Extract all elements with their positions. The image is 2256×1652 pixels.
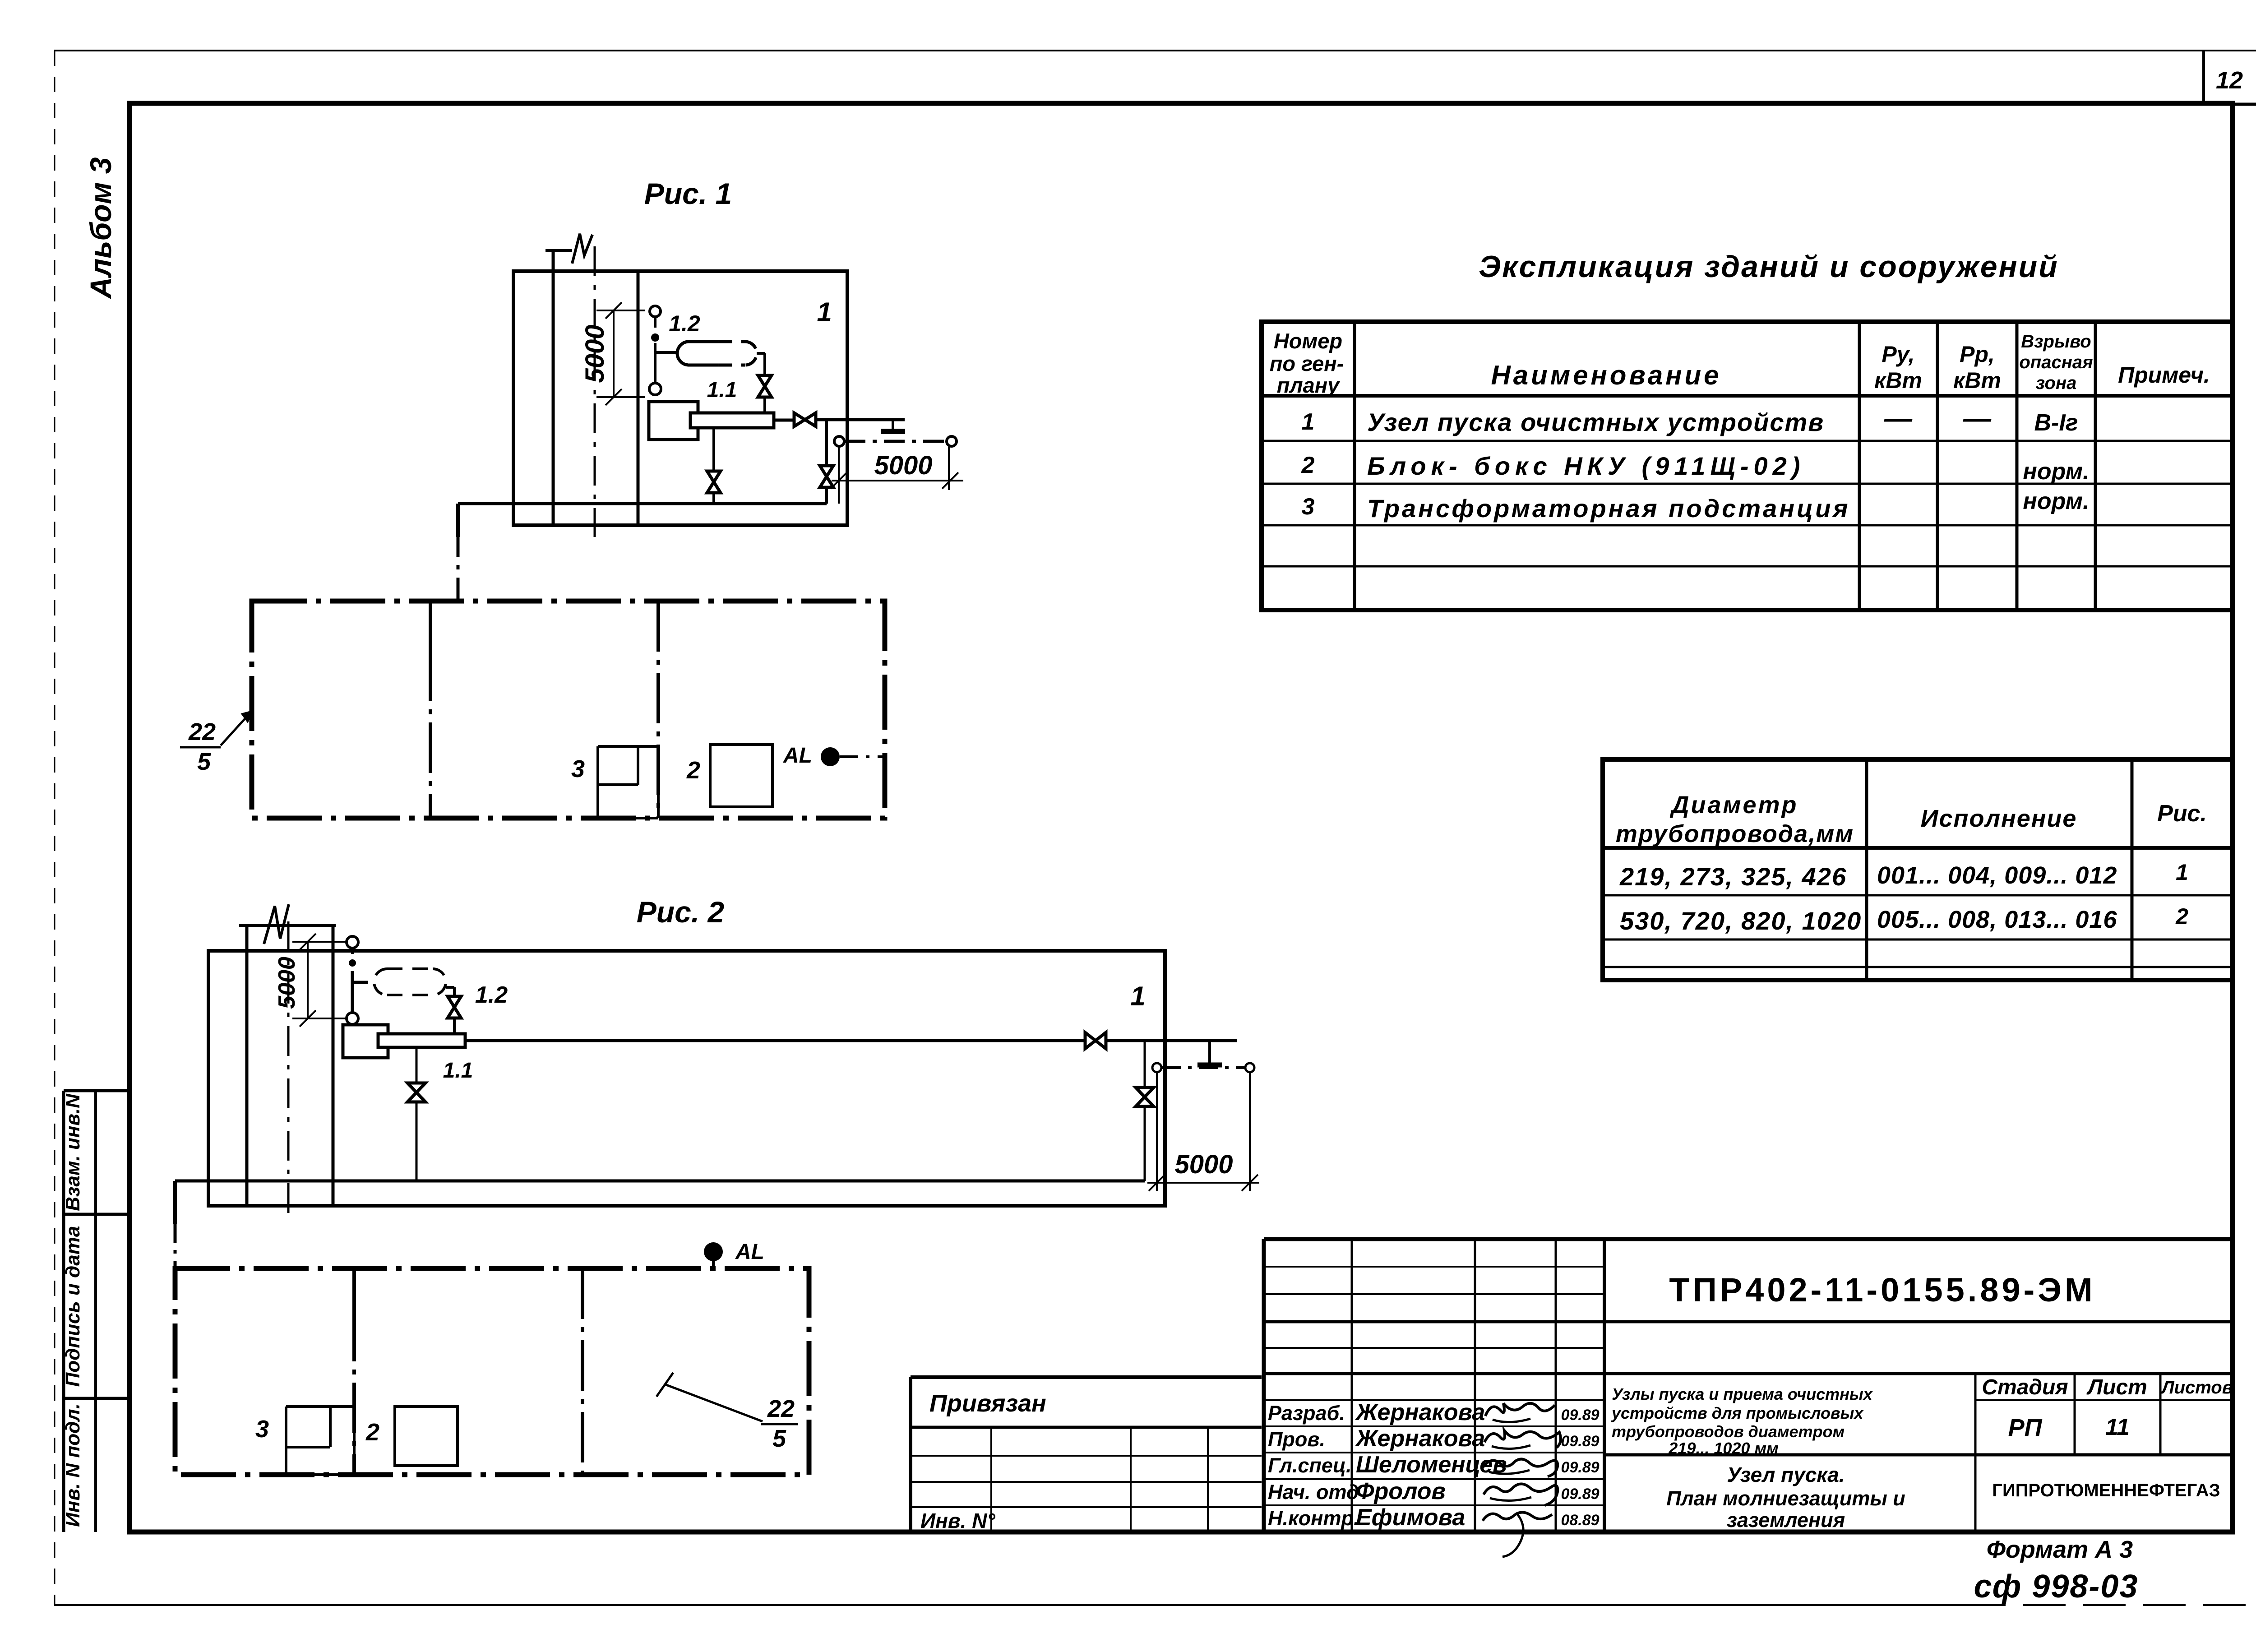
svg-text:Альбом 3: Альбом 3 [84,157,117,300]
svg-text:11: 11 [2105,1414,2130,1440]
svg-text:12: 12 [2216,67,2243,94]
svg-text:Лист: Лист [2086,1375,2147,1399]
svg-text:Узлы пуска и приема очистных: Узлы пуска и приема очистных [1612,1385,1873,1403]
svg-text:Гл.спец.: Гл.спец. [1268,1454,1352,1477]
svg-text:зона: зона [2036,373,2077,393]
svg-text:—: — [1884,403,1913,434]
svg-text:2: 2 [686,757,700,784]
svg-text:3: 3 [1302,494,1315,520]
svg-text:Нач. отд: Нач. отд [1268,1481,1359,1504]
svg-text:Рр,: Рр, [1960,342,1995,367]
svg-text:Ру,: Ру, [1882,342,1914,367]
svg-text:Наименование: Наименование [1491,360,1721,390]
svg-text:09.89: 09.89 [1561,1433,1599,1450]
svg-text:219... 1020 мм: 219... 1020 мм [1668,1439,1778,1458]
svg-text:530, 720, 820, 1020: 530, 720, 820, 1020 [1620,907,1862,935]
svg-text:кВт: кВт [1874,368,1922,393]
svg-text:5: 5 [197,748,211,775]
svg-text:09.89: 09.89 [1561,1485,1599,1503]
svg-text:1: 1 [1130,981,1145,1011]
svg-text:Номер: Номер [1274,329,1342,353]
svg-text:трубопровода,мм: трубопровода,мм [1616,820,1854,847]
svg-text:5000: 5000 [1174,1150,1233,1179]
svg-text:Фролов: Фролов [1356,1478,1446,1504]
svg-text:Примеч.: Примеч. [2118,362,2210,388]
svg-text:Экспликация зданий и сооружени: Экспликация зданий и сооружений [1479,250,2059,284]
svg-text:Трансформаторная подстанция: Трансформаторная подстанция [1367,494,1850,523]
svg-text:плану: плану [1277,373,1341,397]
svg-text:3: 3 [255,1416,269,1443]
svg-text:Узел пуска.: Узел пуска. [1727,1463,1845,1486]
svg-text:норм.: норм. [2023,488,2089,514]
svg-text:норм.: норм. [2023,458,2089,485]
svg-text:Жернакова: Жернакова [1355,1399,1485,1425]
svg-text:AL: AL [735,1240,764,1264]
svg-text:Рис.: Рис. [2157,801,2207,827]
svg-text:1.1: 1.1 [707,378,737,402]
svg-text:Инв. N подл.: Инв. N подл. [62,1403,84,1527]
svg-text:Разраб.: Разраб. [1268,1402,1345,1425]
svg-text:1.1: 1.1 [443,1059,473,1083]
svg-text:опасная: опасная [2019,352,2093,372]
svg-text:по ген-: по ген- [1270,352,1344,375]
svg-text:22: 22 [767,1395,795,1422]
svg-text:Листов: Листов [2160,1378,2233,1397]
svg-text:1: 1 [1302,409,1315,435]
svg-text:сф 998-03: сф 998-03 [1974,1569,2139,1605]
svg-text:219, 273, 325, 426: 219, 273, 325, 426 [1619,862,1847,891]
svg-text:трубопроводов диаметром: трубопроводов диаметром [1612,1422,1845,1441]
svg-text:Диаметр: Диаметр [1670,791,1798,819]
svg-text:5000: 5000 [580,324,610,383]
svg-text:Рис. 2: Рис. 2 [637,895,725,929]
svg-text:3: 3 [571,755,585,782]
svg-text:В-Iг: В-Iг [2034,410,2078,436]
svg-text:ТПР402-11-0155.89-ЭМ: ТПР402-11-0155.89-ЭМ [1669,1271,2095,1309]
svg-text:Исполнение: Исполнение [1921,805,2077,832]
svg-text:устройств для промысловых: устройств для промысловых [1611,1404,1864,1422]
svg-text:Рис. 1: Рис. 1 [644,177,732,210]
svg-text:AL: AL [783,744,812,768]
svg-text:Жернакова: Жернакова [1355,1425,1485,1452]
svg-text:—: — [1963,403,1992,434]
svg-text:Пров.: Пров. [1268,1428,1325,1451]
svg-text:Блок- бокс НКУ (911Щ-02): Блок- бокс НКУ (911Щ-02) [1367,452,1805,480]
svg-text:Узел пуска очистных устройств: Узел пуска очистных устройств [1367,408,1824,436]
svg-text:Стадия: Стадия [1982,1375,2068,1399]
svg-text:001... 004, 009... 012: 001... 004, 009... 012 [1877,862,2117,889]
svg-text:005... 008, 013... 016: 005... 008, 013... 016 [1877,906,2117,933]
svg-text:5000: 5000 [274,957,300,1009]
svg-text:План молниезащиты и: План молниезащиты и [1666,1487,1905,1510]
svg-text:Инв. N°: Инв. N° [920,1509,995,1532]
svg-text:1.2: 1.2 [475,982,508,1008]
svg-text:кВт: кВт [1953,368,2001,393]
svg-text:09.89: 09.89 [1561,1407,1599,1424]
svg-text:ГИПРОТЮМЕННЕФТЕГАЗ: ГИПРОТЮМЕННЕФТЕГАЗ [1992,1481,2220,1500]
svg-text:2: 2 [1301,452,1315,478]
svg-text:2: 2 [365,1419,379,1446]
svg-text:1.2: 1.2 [669,311,700,336]
svg-text:Формат А 3: Формат А 3 [1987,1536,2133,1563]
svg-text:5: 5 [772,1425,786,1452]
svg-text:Ефимова: Ефимова [1356,1504,1465,1531]
svg-text:заземления: заземления [1727,1509,1845,1532]
svg-text:Взам. инв.N: Взам. инв.N [62,1093,84,1211]
svg-text:5000: 5000 [874,451,932,480]
svg-text:1: 1 [817,297,832,327]
svg-text:08.89: 08.89 [1561,1512,1599,1529]
svg-text:Подпись и дата: Подпись и дата [62,1226,84,1387]
svg-text:2: 2 [2175,904,2188,929]
svg-text:Привязан: Привязан [929,1390,1046,1417]
svg-text:1: 1 [2176,860,2188,885]
svg-text:Взрыво: Взрыво [2021,332,2091,352]
svg-text:22: 22 [188,718,216,745]
svg-text:09.89: 09.89 [1561,1459,1599,1476]
svg-text:РП: РП [2008,1414,2043,1441]
svg-text:Н.контр.: Н.контр. [1268,1507,1359,1530]
